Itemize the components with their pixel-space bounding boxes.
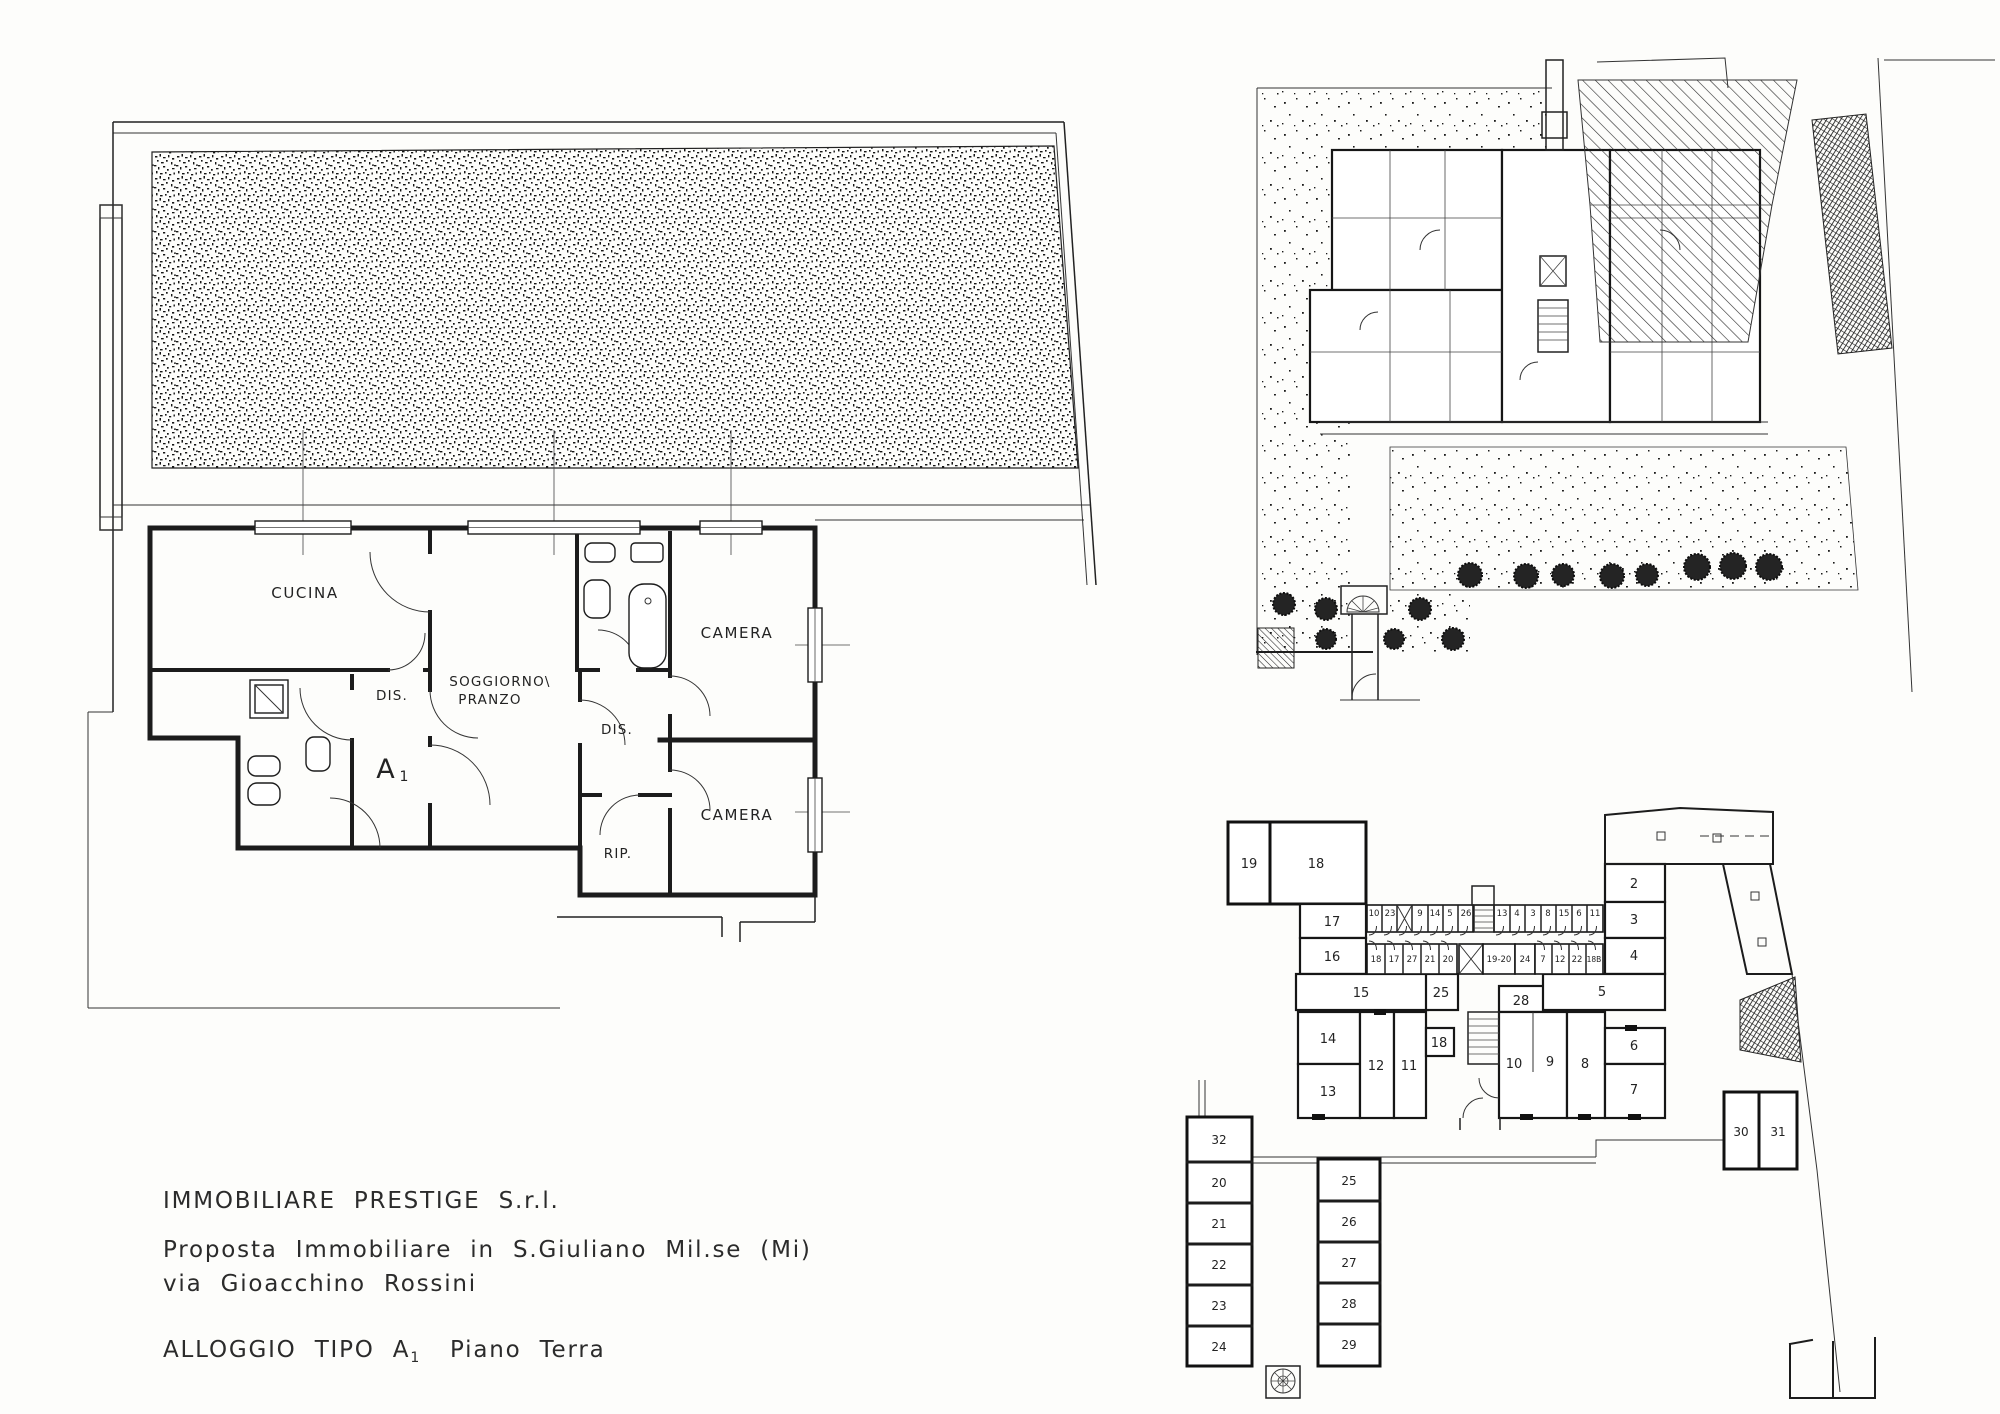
garage-4-label: 4 [1630,949,1638,964]
cantina-label: 24 [1520,955,1531,965]
cantina-label: 4 [1514,909,1519,919]
site-hatch-square [1258,628,1294,668]
garage-7-label: 7 [1630,1083,1638,1098]
garage-23-label: 23 [1211,1299,1226,1313]
cantina-label: 11 [1590,909,1601,919]
cantina-label: 14 [1430,909,1441,919]
room-label-dis-2: DIS. [601,722,633,738]
garage-26-label: 26 [1341,1215,1356,1229]
garage-6-label: 6 [1630,1039,1638,1054]
garage-32-label: 32 [1211,1133,1226,1147]
cantina-label: 5 [1447,909,1452,919]
room-label-kitchen: CUCINA [271,584,338,602]
cantina-label: 22 [1572,955,1583,965]
room-label-camera-2: CAMERA [701,806,774,824]
garage-5-label: 5 [1598,985,1606,1000]
address-line: via Gioacchino Rossini [163,1271,812,1297]
garage-11-label: 11 [1401,1059,1418,1074]
site-hatch-unit-area [1578,80,1797,342]
cantina-label: 18B [1587,955,1602,964]
garage-20-label: 20 [1211,1176,1226,1190]
basement-plan: 19 18 17 16 15 14 13 12 11 25 18 28 10 9… [1187,808,1875,1398]
unit-label-a1-sub: 1 [400,769,409,785]
room-label-dis-1: DIS. [376,688,408,704]
garage-2-label: 2 [1630,877,1638,892]
cantina-label: 26 [1461,909,1472,919]
garage-24-label: 24 [1211,1340,1226,1354]
room-18-label: 18 [1431,1036,1448,1051]
cantina-label: 19-20 [1487,955,1512,965]
garage-29-label: 29 [1341,1338,1356,1352]
garage-3-label: 3 [1630,913,1638,928]
cantina-label: 12 [1555,955,1566,965]
garage-14-label: 14 [1320,1032,1337,1047]
title-block: IMMOBILIARE PRESTIGE S.r.l. Proposta Imm… [163,1188,812,1366]
room-label-rip: RIP. [604,846,633,862]
cantina-label: 8 [1545,909,1550,919]
unit-floor-line: ALLOGGIO TIPO A1 Piano Terra [163,1337,812,1366]
cantina-label: 10 [1369,909,1380,919]
room-28-label: 28 [1513,994,1530,1009]
cantina-label: 17 [1389,955,1400,965]
cantina-label: 7 [1540,955,1545,965]
room-label-camera-1: CAMERA [701,624,774,642]
garage-27-label: 27 [1341,1256,1356,1270]
room-25-label: 25 [1433,986,1450,1001]
cantina-label: 15 [1559,909,1570,919]
cantina-label: 21 [1425,955,1436,965]
cantina-label: 20 [1443,955,1454,965]
cantina-label: 6 [1576,909,1581,919]
room-10-label: 10 [1506,1057,1523,1072]
room-label-living-2: PRANZO [458,692,521,708]
garage-12-label: 12 [1368,1059,1385,1074]
cantina-label: 27 [1407,955,1418,965]
garage-30-label: 30 [1733,1125,1748,1139]
garage-15-label: 15 [1353,986,1370,1001]
cantina-label: 13 [1497,909,1508,919]
proposal-line: Proposta Immobiliare in S.Giuliano Mil.s… [163,1237,812,1263]
blueprint-page: CUCINA SOGGIORNO\ PRANZO DIS. A 1 DIS. R… [0,0,2000,1414]
cantina-label: 9 [1417,909,1422,919]
garage-17-label: 17 [1324,915,1341,930]
room-9-label: 9 [1546,1055,1554,1070]
garage-22-label: 22 [1211,1258,1226,1272]
floor-label: Piano Terra [450,1337,606,1363]
garage-21-label: 21 [1211,1217,1226,1231]
company-name: IMMOBILIARE PRESTIGE S.r.l. [163,1188,812,1214]
garage-19-label: 19 [1241,857,1258,872]
garage-16-label: 16 [1324,950,1341,965]
unit-type-sub: 1 [410,1350,419,1366]
terrace-garden [88,122,1096,1008]
unit-label-a1: A [376,754,395,785]
cantina-label: 3 [1530,909,1535,919]
garage-25-label: 25 [1341,1174,1356,1188]
room-label-living-1: SOGGIORNO\ [449,674,550,690]
room-8-label: 8 [1581,1057,1589,1072]
cantina-label: 23 [1385,909,1396,919]
garage-18-label: 18 [1308,857,1325,872]
garage-28-label: 28 [1341,1297,1356,1311]
garage-31-label: 31 [1770,1125,1785,1139]
apartment-floor-plan: CUCINA SOGGIORNO\ PRANZO DIS. A 1 DIS. R… [88,122,1096,1008]
site-plan [1257,58,1995,700]
garage-13-label: 13 [1320,1085,1337,1100]
unit-type-label: ALLOGGIO TIPO A [163,1337,410,1363]
cantina-label: 18 [1371,955,1382,965]
